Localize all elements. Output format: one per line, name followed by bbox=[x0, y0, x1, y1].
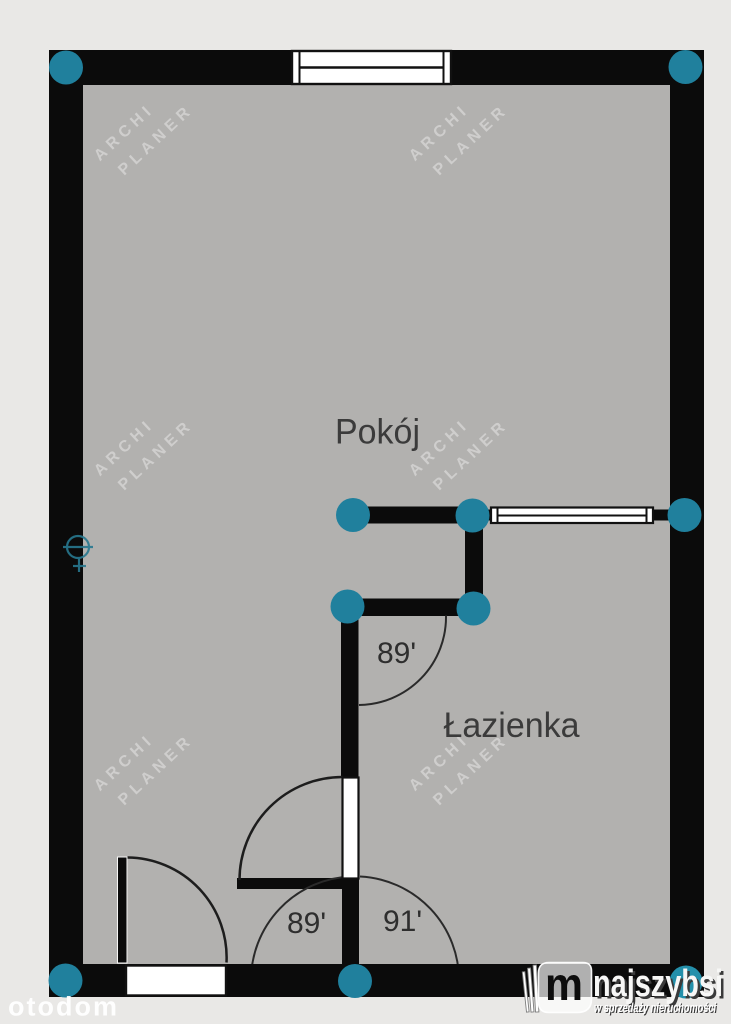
svg-text:Pokój: Pokój bbox=[335, 413, 420, 452]
svg-text:najszybsi: najszybsi bbox=[593, 963, 723, 1005]
svg-text:89': 89' bbox=[287, 907, 326, 940]
svg-text:m: m bbox=[545, 958, 583, 1010]
svg-text:w sprzedaży nieruchomości: w sprzedaży nieruchomości bbox=[594, 1000, 716, 1015]
svg-text:Łazienka: Łazienka bbox=[444, 706, 581, 745]
svg-text:89': 89' bbox=[377, 637, 416, 670]
svg-text:91': 91' bbox=[383, 905, 422, 938]
svg-text:otodom: otodom bbox=[8, 992, 119, 1022]
